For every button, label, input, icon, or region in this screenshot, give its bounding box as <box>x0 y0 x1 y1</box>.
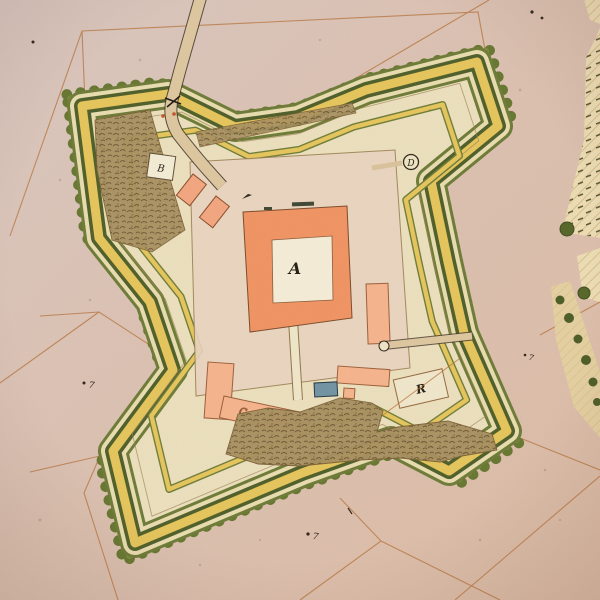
fort-map-canvas: A C B D R <box>0 0 600 600</box>
vignette-overlay <box>0 0 600 600</box>
star-fort-plan: A C B D R <box>0 0 600 600</box>
